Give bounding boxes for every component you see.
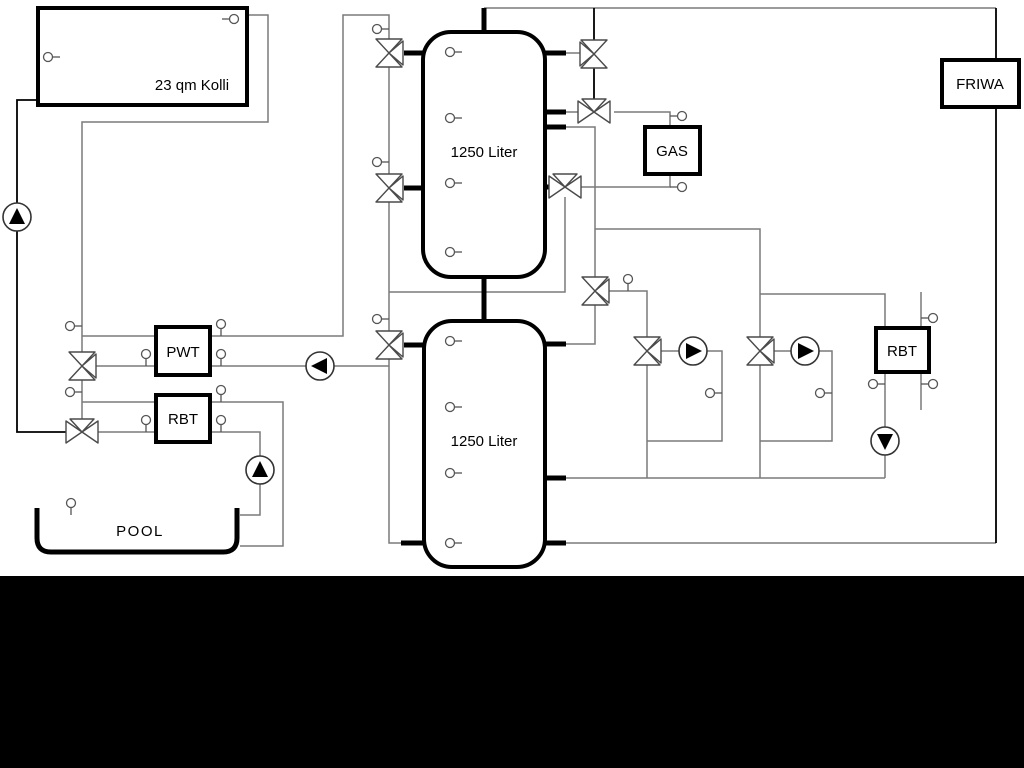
heating-pump-2-icon <box>791 337 819 365</box>
heating-pump-1-icon <box>679 337 707 365</box>
temp-sensor-pwt-top-right-icon <box>217 320 226 337</box>
friwa-label: FRIWA <box>956 76 1004 93</box>
temp-sensor-rbt-in-icon <box>142 416 151 433</box>
three-way-valve-tank1-mid-left-icon <box>376 174 403 202</box>
temp-sensor-supply-branch-icon <box>624 275 633 292</box>
temp-sensor-circuit1-icon <box>706 389 723 398</box>
temp-sensor-gas-flow-icon <box>670 112 687 121</box>
pipe-solar-return-black <box>17 100 66 432</box>
temp-sensor-rbt-right-out-icon <box>869 380 886 389</box>
three-way-valve-pwt-icon <box>69 352 96 380</box>
heating-schematic: 23 qm Kolli 1250 Liter 1250 Liter PWT RB… <box>0 0 1024 768</box>
temp-sensor-pool-icon <box>67 499 76 516</box>
three-way-valve-gas-return-icon <box>549 174 581 198</box>
three-way-valve-tank1-top-right-icon <box>580 40 607 68</box>
gas-label: GAS <box>656 143 688 160</box>
three-way-valve-tank1-top-left-icon <box>376 39 403 67</box>
temp-sensor-rbt-right-top-icon <box>921 314 938 323</box>
solar-pump-icon <box>3 203 31 231</box>
rbt-left-label: RBT <box>168 411 198 428</box>
buffer-tank-top-label: 1250 Liter <box>451 144 518 161</box>
three-way-valve-rbt-left-icon <box>66 419 98 443</box>
rbt-right-label: RBT <box>887 343 917 360</box>
pipe-heating-circuit-2 <box>760 351 832 478</box>
pwt-pump-icon <box>306 352 334 380</box>
temp-sensor-pwt-in-icon <box>142 350 151 367</box>
pipe-heating-circuit-1 <box>647 351 722 478</box>
three-way-valve-tank2-left-icon <box>376 331 403 359</box>
three-way-valve-circuit2-icon <box>747 337 774 365</box>
temp-sensor-pwt-left-icon <box>66 322 83 331</box>
buffer-tank-bottom-label: 1250 Liter <box>451 433 518 450</box>
pwt-label: PWT <box>166 344 199 361</box>
temp-sensor-pwt-out-icon <box>217 350 226 367</box>
temp-sensor-valve1-icon <box>373 25 390 34</box>
temp-sensor-valve3-icon <box>373 315 390 324</box>
solar-collector-label: 23 qm Kolli <box>155 77 229 94</box>
pipe-return-bus <box>565 372 885 478</box>
temp-sensor-rbt-out-icon <box>217 416 226 433</box>
temp-sensor-rbt-top-right-icon <box>217 386 226 403</box>
three-way-valve-supply-icon <box>582 277 609 305</box>
footer-black-band <box>0 576 1024 768</box>
schematic-canvas: 23 qm Kolli 1250 Liter 1250 Liter PWT RB… <box>0 0 1024 768</box>
three-way-valve-circuit1-icon <box>634 337 661 365</box>
temp-sensor-rbt-right-in-icon <box>921 380 938 389</box>
pool-label: POOL <box>116 523 164 540</box>
temp-sensor-valve2-icon <box>373 158 390 167</box>
pipe-rbt-left-bottom <box>98 432 260 515</box>
temp-sensor-gas-return-icon <box>670 183 687 192</box>
temp-sensor-rbt-left-icon <box>66 388 83 397</box>
rbt-right-pump-icon <box>871 427 899 455</box>
three-way-valve-gas-flow-icon <box>578 99 610 123</box>
pipe-supply-main <box>565 127 885 344</box>
pool-pump-icon <box>246 456 274 484</box>
temp-sensor-circuit2-icon <box>816 389 833 398</box>
